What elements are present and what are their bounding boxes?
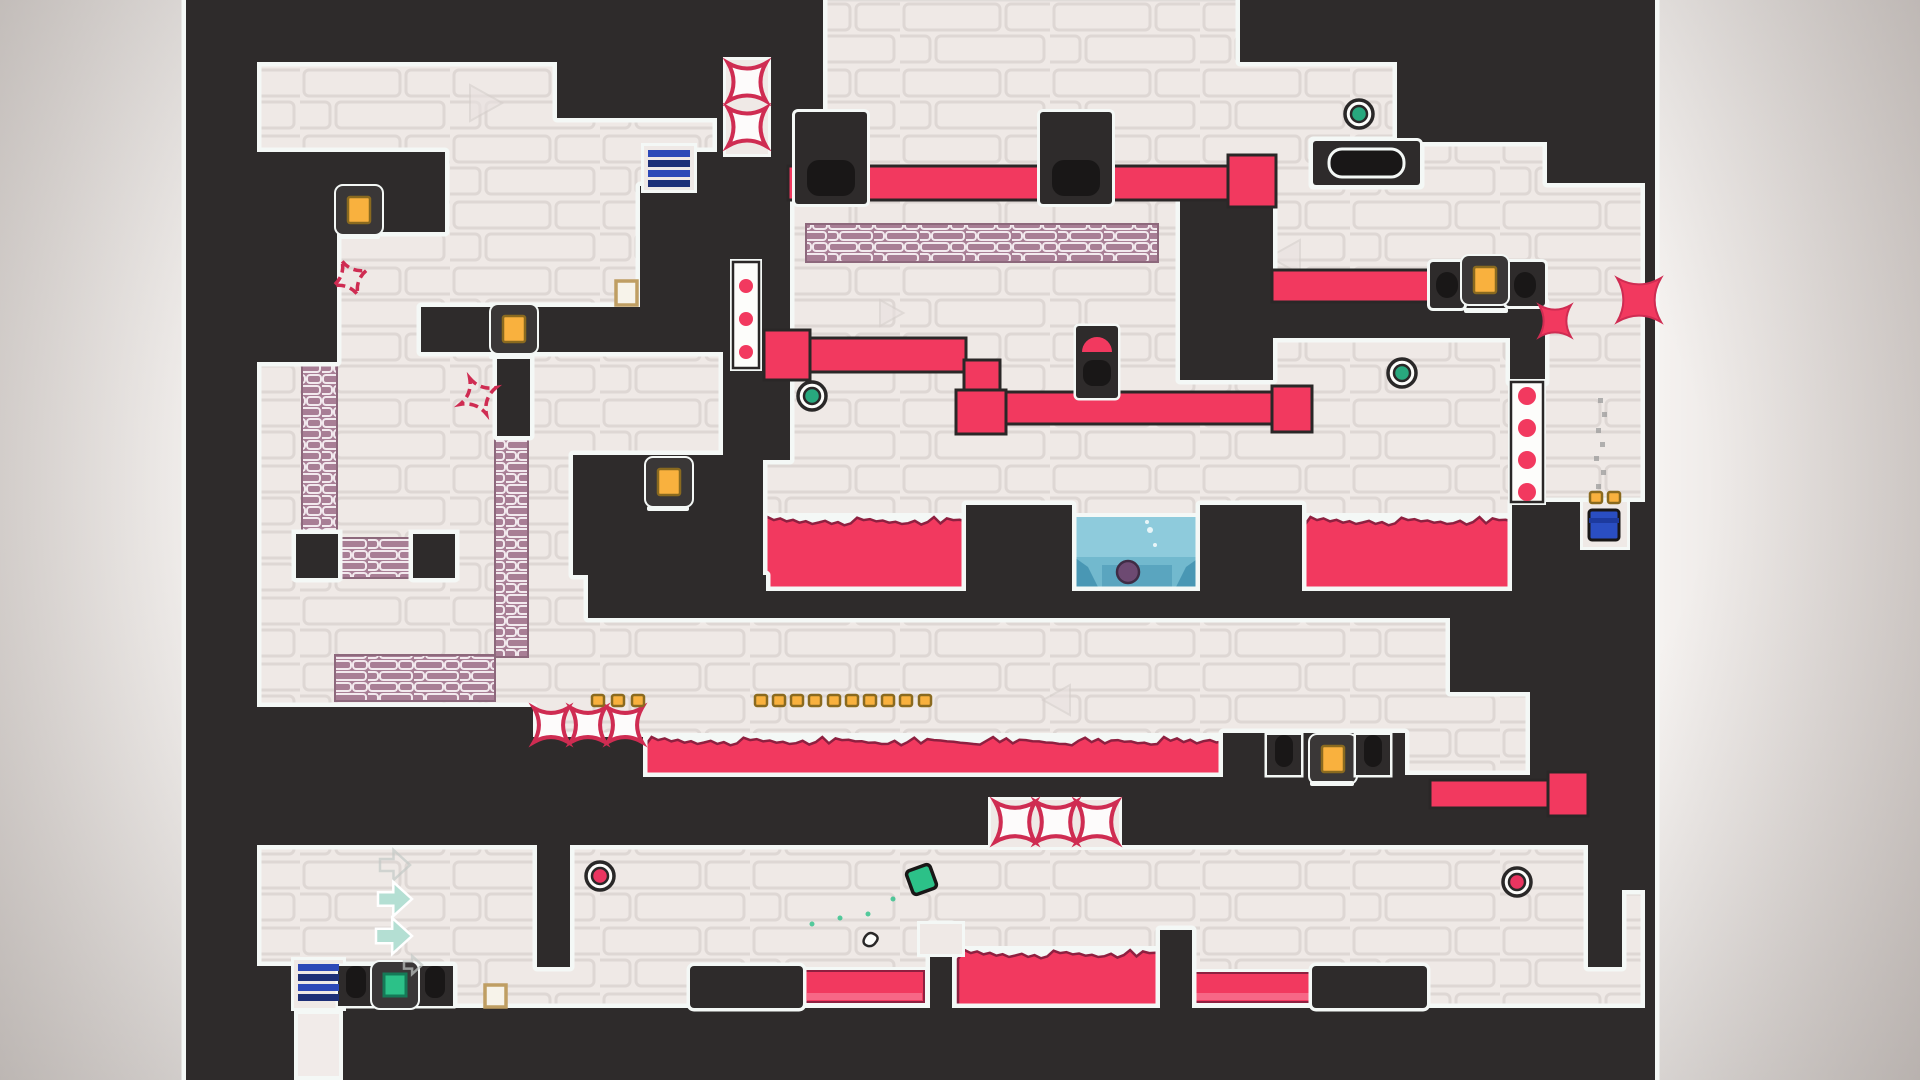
mauve-brick-strip	[337, 538, 415, 578]
green-orb[interactable]	[804, 388, 820, 404]
dust-trail-dot	[1594, 456, 1599, 461]
mauve-brick-strip	[495, 430, 528, 657]
spike-burst	[608, 708, 642, 742]
pipe-clamp-socket	[1436, 272, 1458, 298]
blue-bar-stack	[298, 974, 339, 981]
mini-gold-dot[interactable]	[828, 695, 840, 706]
blue-bar-stack	[648, 170, 690, 177]
lava-pool	[958, 950, 1162, 1008]
character-particle	[866, 912, 871, 917]
spike-burst	[571, 708, 605, 742]
wall-notch-slot	[425, 966, 445, 998]
dust-trail-dot	[1596, 428, 1601, 433]
dot-column-dot	[739, 279, 753, 293]
hole-block-slot	[1329, 149, 1404, 177]
spike-burst-solid	[1617, 278, 1661, 322]
water-bubble	[1145, 520, 1149, 524]
pink-pipe-cap	[956, 390, 1006, 434]
mini-gold-dot[interactable]	[1608, 492, 1620, 503]
blue-bar-stack	[298, 964, 339, 971]
dust-trail-dot	[1598, 398, 1603, 403]
mini-gold-dot[interactable]	[612, 695, 624, 706]
character-particle	[810, 922, 815, 927]
mini-gold-dot[interactable]	[755, 695, 767, 706]
wall-notch-slot	[1364, 735, 1382, 767]
wall-notch-slot	[346, 966, 366, 998]
pipe-clamp-socket	[1052, 160, 1100, 196]
pink-pipe-cap	[1272, 386, 1312, 432]
character-particle	[891, 897, 896, 902]
squiggle-doodle	[864, 933, 878, 946]
plunger-socket	[1083, 360, 1111, 386]
dot-column-dot	[1518, 451, 1536, 469]
blue-bin-lid	[1589, 518, 1619, 523]
mini-gold-dot[interactable]	[791, 695, 803, 706]
mini-gold-dot[interactable]	[592, 695, 604, 706]
mini-gold-dot[interactable]	[809, 695, 821, 706]
dust-trail-dot	[1601, 470, 1606, 475]
spike-burst	[1077, 802, 1117, 842]
red-orb[interactable]	[592, 868, 608, 884]
dust-trail-dot	[1596, 484, 1601, 489]
rail-mark	[338, 234, 380, 239]
mauve-brick-strip	[335, 655, 495, 701]
lava-pool	[1304, 517, 1512, 591]
collectible-gold[interactable]	[348, 197, 370, 223]
rail-mark	[647, 506, 689, 511]
outlined-block	[690, 966, 803, 1008]
level-canvas[interactable]	[0, 0, 1920, 1080]
green-orb[interactable]	[1351, 106, 1367, 122]
mini-gold-dot[interactable]	[846, 695, 858, 706]
wall-recess	[920, 924, 962, 954]
water-bubble	[1147, 527, 1153, 533]
rail-mark	[489, 354, 533, 359]
character-particle	[838, 916, 843, 921]
mauve-brick-strip	[302, 360, 337, 538]
pink-pipe	[1272, 270, 1433, 302]
wall-notch-slot	[1275, 735, 1293, 767]
dot-column-dot	[739, 312, 753, 326]
lava-slab-glow	[807, 993, 922, 1000]
mini-gold-dot[interactable]	[882, 695, 894, 706]
spike-burst	[1036, 802, 1076, 842]
dot-column-dot	[1518, 419, 1536, 437]
pink-pipe	[1004, 392, 1272, 424]
pipe-clamp-socket	[807, 160, 855, 196]
spike-burst	[728, 108, 766, 146]
blue-bar-stack	[648, 160, 690, 167]
spike-burst	[995, 802, 1035, 842]
spike-burst	[534, 708, 568, 742]
blue-bar-stack	[648, 180, 690, 187]
pink-pipe-cap	[764, 330, 810, 380]
rail-mark	[1464, 308, 1508, 313]
lava-pool	[761, 517, 966, 591]
mini-gold-dot[interactable]	[1590, 492, 1602, 503]
dot-column-dot	[1518, 387, 1536, 405]
red-orb[interactable]	[1509, 874, 1525, 890]
green-orb[interactable]	[1394, 365, 1410, 381]
collectible-gold[interactable]	[1474, 267, 1496, 293]
gem-green[interactable]	[384, 974, 406, 996]
water-bubble	[1153, 543, 1157, 547]
blue-bar-stack	[648, 150, 690, 157]
mini-gold-dot[interactable]	[919, 695, 931, 706]
collectible-gold[interactable]	[1322, 746, 1344, 772]
pipe-clamp-socket	[1514, 272, 1536, 298]
pink-pipe-cap	[1548, 772, 1588, 816]
white-pillar	[296, 1012, 341, 1078]
hollow-square-marker	[485, 985, 506, 1007]
dot-column-dot	[739, 345, 753, 359]
pink-pipe	[1430, 780, 1548, 808]
blue-bar-stack	[298, 994, 339, 1001]
mini-gold-dot[interactable]	[900, 695, 912, 706]
water-blob	[1117, 561, 1139, 583]
spike-burst	[728, 63, 766, 101]
blue-bar-stack	[298, 984, 339, 991]
collectible-gold[interactable]	[503, 316, 525, 342]
pink-pipe-cap	[1228, 155, 1276, 207]
game-level[interactable]	[0, 0, 1920, 1080]
dust-trail-dot	[1600, 442, 1605, 447]
lava-slab-glow	[1194, 993, 1310, 1000]
spike-burst-solid	[1539, 305, 1571, 337]
blue-bin[interactable]	[1589, 510, 1619, 540]
mini-gold-dot[interactable]	[632, 695, 644, 706]
mini-gold-dot[interactable]	[773, 695, 785, 706]
collectible-gold[interactable]	[658, 469, 680, 495]
hollow-square-marker	[616, 281, 637, 305]
dust-trail-dot	[1602, 412, 1607, 417]
rail-mark	[1310, 781, 1354, 786]
outlined-block	[1312, 966, 1427, 1008]
mini-gold-dot[interactable]	[864, 695, 876, 706]
dot-column-dot	[1518, 483, 1536, 501]
mauve-brick-strip	[806, 224, 1158, 262]
